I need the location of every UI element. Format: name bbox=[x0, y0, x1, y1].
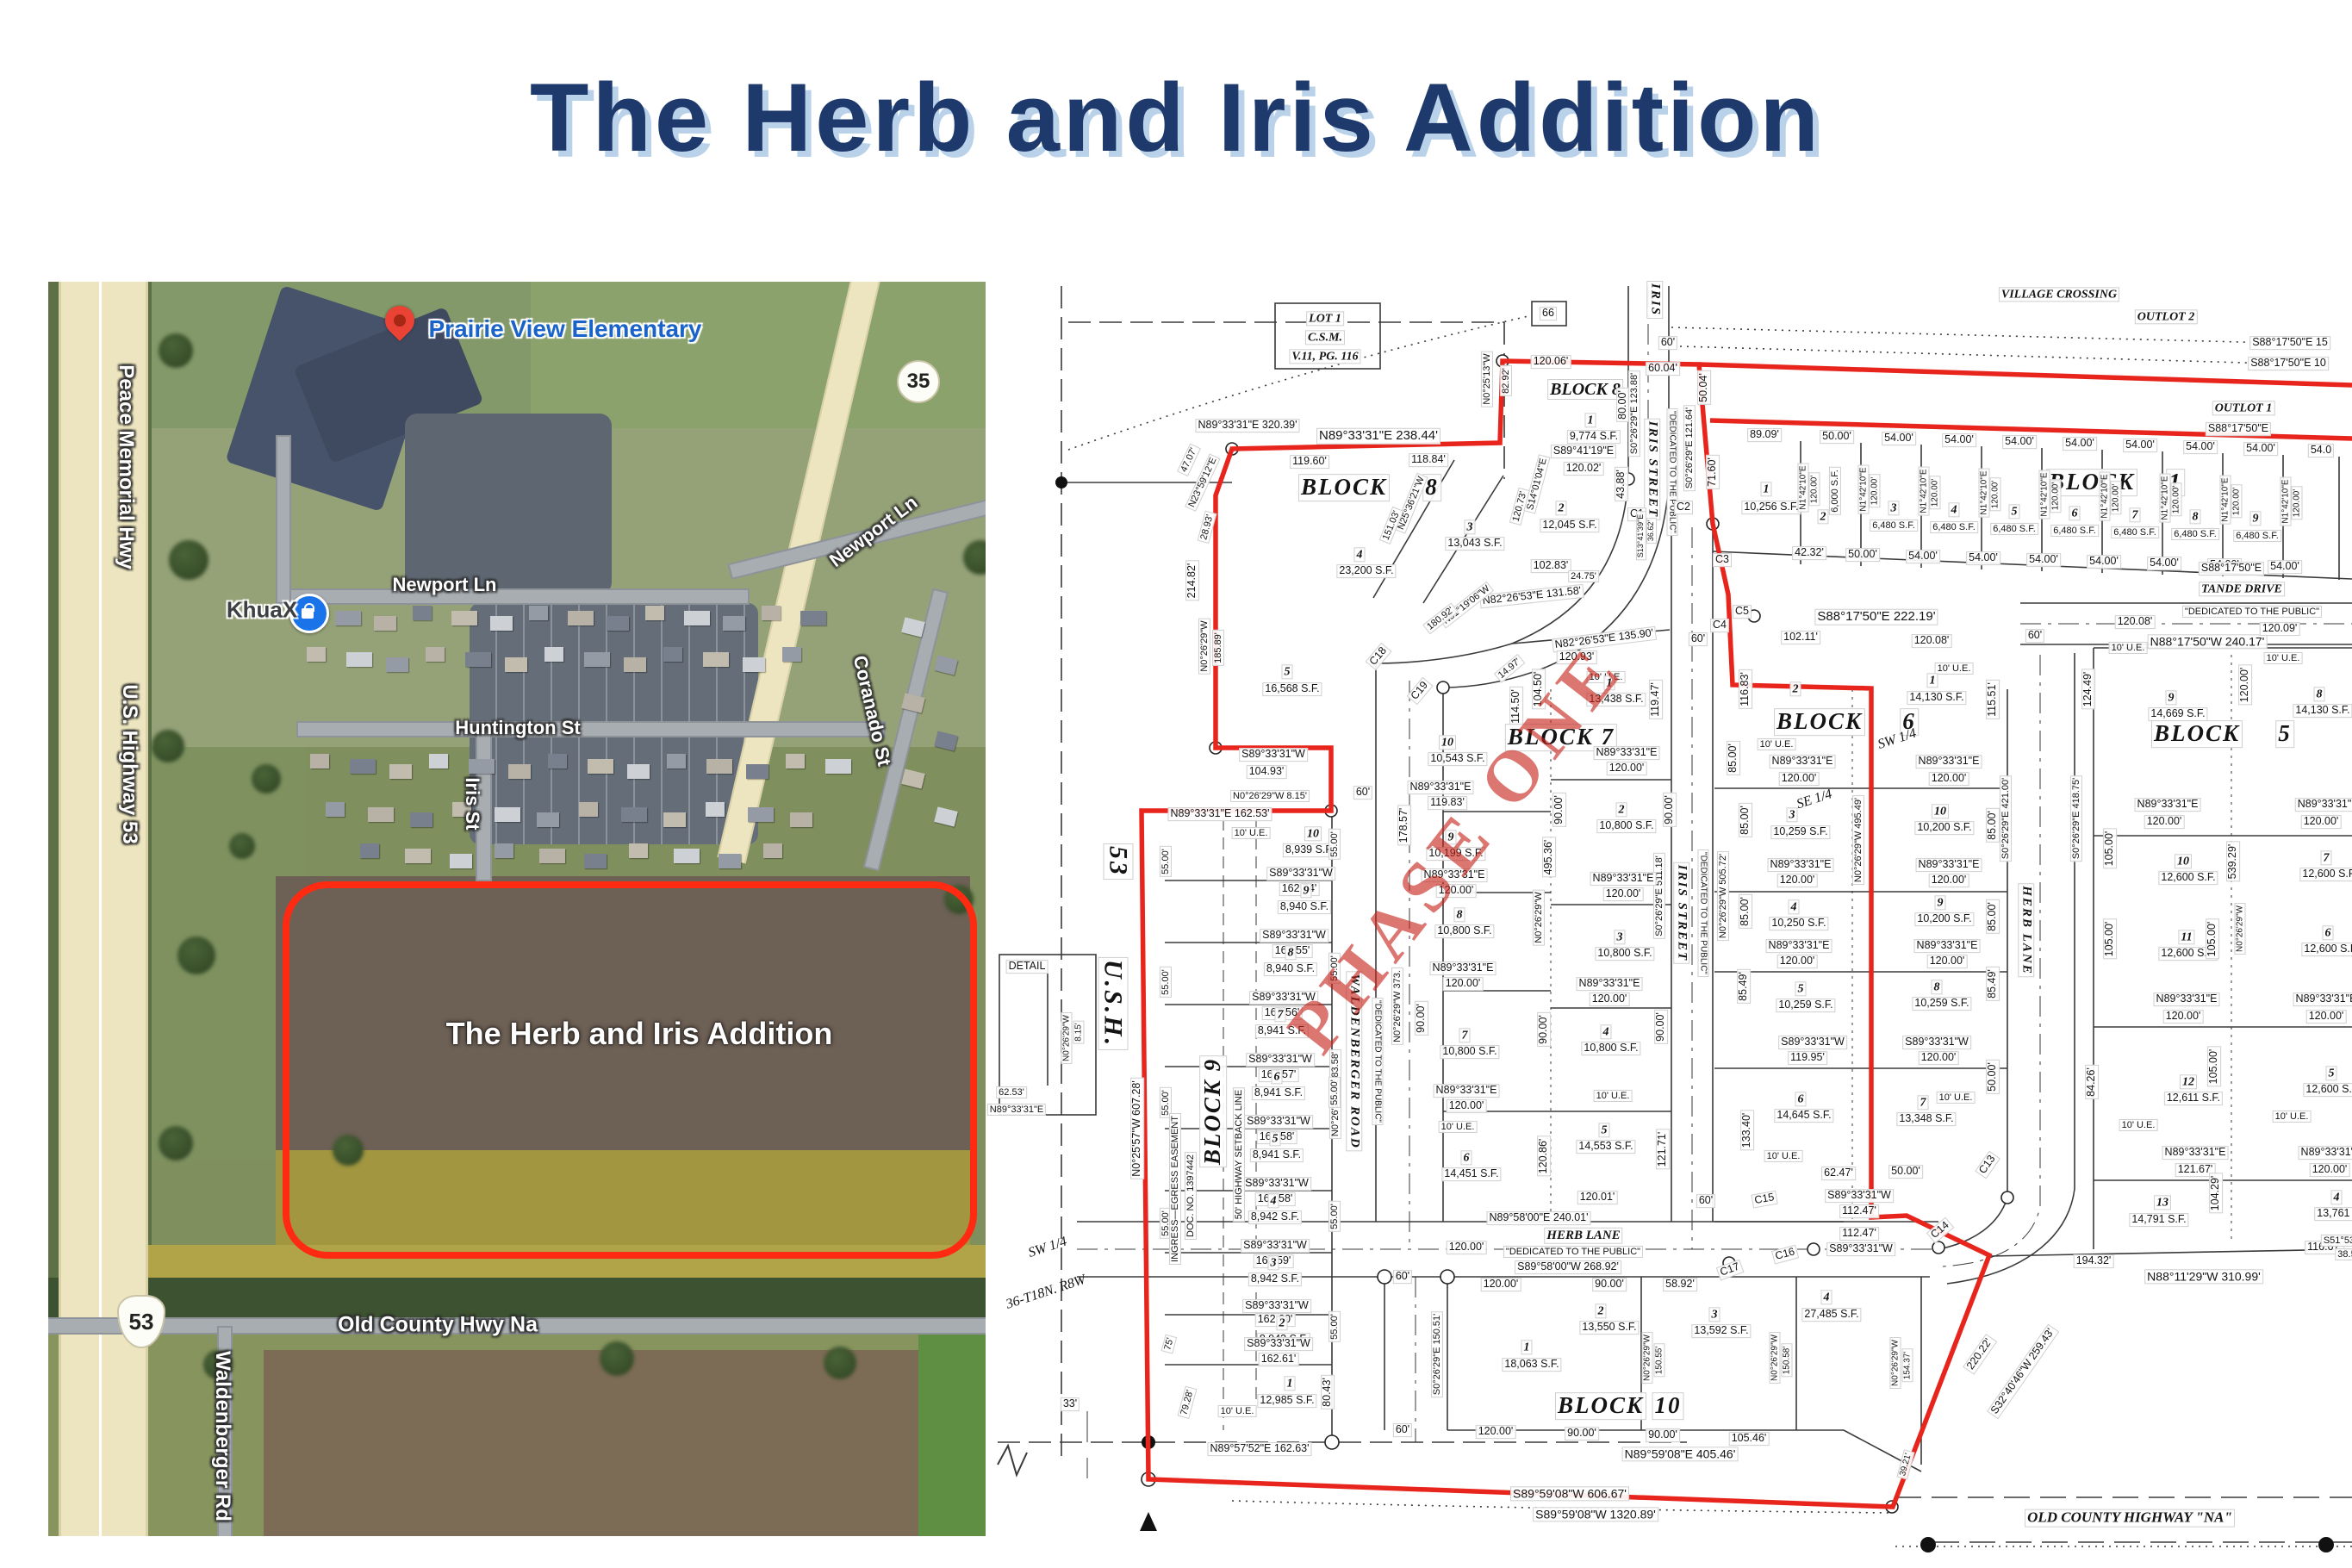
plat-label: 14,130 S.F. bbox=[1907, 691, 1966, 705]
plat-label: 120.00' bbox=[1447, 1241, 1487, 1254]
plat-label: 120.00' bbox=[1870, 475, 1881, 508]
plat-label: 185.89' bbox=[1212, 630, 1224, 666]
plat-label: 8 bbox=[1285, 945, 1297, 960]
plat-label: S88°17'50"E 10 bbox=[2248, 357, 2329, 370]
plat-label: 66 bbox=[1540, 307, 1557, 320]
plat-label: 105.00' bbox=[2207, 1047, 2221, 1087]
plat-label: 3 bbox=[1888, 501, 1900, 515]
plat-label: 120.00' bbox=[2171, 483, 2182, 517]
plat-label: N89°59'08"E 405.46' bbox=[1622, 1447, 1739, 1461]
plat-label: BLOCK bbox=[1774, 708, 1865, 736]
plat-label: N0°26'29"W bbox=[1198, 618, 1210, 674]
plat-label: 54.00' bbox=[2087, 555, 2121, 569]
plat-label: 5 bbox=[2326, 1066, 2337, 1080]
plat-label: N1°42'10"E bbox=[1979, 468, 1990, 517]
plat-label: 154.37' bbox=[1902, 1349, 1913, 1383]
plat-label: 8,940 S.F. bbox=[1278, 900, 1331, 914]
plat-label: 85.00' bbox=[1986, 808, 2000, 843]
plat-label: 85.00' bbox=[1739, 803, 1752, 837]
plat-label: 105.00' bbox=[2206, 919, 2219, 960]
plat-label: 8 bbox=[2190, 509, 2201, 524]
plat-label: 162.61' bbox=[1259, 1353, 1299, 1366]
plat-label: OLD COUNTY HIGHWAY "NA" bbox=[2025, 1509, 2235, 1528]
plat-label: 55.00' bbox=[1160, 846, 1172, 877]
plat-label: 90.00' bbox=[1654, 1010, 1668, 1044]
plat-label: C.S.M. bbox=[1305, 330, 1345, 345]
plat-label: 12 bbox=[2180, 1074, 2197, 1089]
plat-label: 119.60' bbox=[1290, 455, 1329, 469]
plat-label: 10' U.E. bbox=[2264, 652, 2303, 664]
plat-label: 11 bbox=[2178, 930, 2194, 944]
plat-label: 54.00' bbox=[2026, 553, 2061, 567]
plat-label: S89°33'31"W bbox=[1241, 1239, 1310, 1253]
plat-label: N89°33'31"E bbox=[1434, 1084, 1500, 1098]
plat-label: 6,480 S.F. bbox=[2050, 525, 2099, 537]
plat-label: 120.00' bbox=[2310, 1163, 2350, 1177]
plat-label: S89°58'00"W 268.92' bbox=[1515, 1260, 1621, 1274]
plat-label: S89°33'31"W bbox=[1244, 1337, 1313, 1351]
plat-label: 120.00' bbox=[1590, 992, 1630, 1006]
plat-label: 10,800 S.F. bbox=[1596, 819, 1656, 833]
plat-label: 104.29' bbox=[2209, 1173, 2223, 1214]
plat-label: N0°26'29"W bbox=[1642, 1332, 1653, 1384]
plat-label: 10 bbox=[1932, 804, 1949, 818]
plat-label: 120.00' bbox=[1481, 1278, 1521, 1291]
plat-label: 9 bbox=[2166, 690, 2177, 705]
plat-label: 120.00' bbox=[2301, 815, 2342, 829]
plat-label: N1°42'10"E bbox=[2039, 470, 2050, 519]
plat-label: 9 bbox=[1935, 895, 1946, 910]
plat-label: 10' U.E. bbox=[2119, 1119, 2158, 1131]
plat-label: 55.00' bbox=[1328, 1077, 1341, 1108]
plat-label: N1°42'10"E bbox=[2160, 473, 2171, 522]
plat-label: 162.54' bbox=[1279, 882, 1320, 896]
plat-label: 10' U.E. bbox=[1935, 663, 1974, 675]
plat-label: 14,451 S.F. bbox=[1441, 1167, 1501, 1181]
plat-label: 60' bbox=[1393, 1423, 1412, 1437]
plat-label: 55.00' bbox=[1160, 967, 1172, 998]
plat-label: N0°26'29"W bbox=[2235, 903, 2246, 955]
plat-label: 50.00' bbox=[1820, 430, 1854, 444]
plat-label: 120.00' bbox=[1927, 955, 1968, 968]
plat-label: S0°26'29"E 121.64' bbox=[1683, 405, 1696, 491]
plat-label: 10' U.E. bbox=[2109, 642, 2148, 654]
plat-label: 6 bbox=[1461, 1150, 1472, 1165]
plat-label: 3 bbox=[1465, 520, 1476, 534]
plat-label: 90.00' bbox=[1552, 793, 1566, 827]
plat-label: 120.00' bbox=[2231, 485, 2243, 519]
plat-label: TANDE DRIVE bbox=[2199, 582, 2285, 596]
plat-label: 54.00' bbox=[2123, 439, 2157, 452]
plat-label: 54.00' bbox=[1966, 551, 2000, 565]
plat-label: 133.40' bbox=[1740, 1111, 1754, 1151]
plat-label: 12,611 S.F. bbox=[2164, 1092, 2223, 1105]
plat-label: 120.00' bbox=[2050, 480, 2062, 513]
plat-label: 120.00' bbox=[1777, 955, 1818, 968]
plat-label: DETAIL bbox=[1006, 960, 1048, 974]
plat-label: N0°25'57"W 607.28' bbox=[1130, 1078, 1144, 1179]
plat-label: 3 bbox=[1268, 1255, 1279, 1270]
plat-label: 7 bbox=[1918, 1095, 1929, 1110]
plat-label: 8 bbox=[2314, 687, 2325, 701]
plat-label: 50.04' bbox=[1697, 370, 1711, 405]
plat-label: 10,200 S.F. bbox=[1914, 912, 1974, 926]
plat-label: HERB LANE bbox=[2019, 883, 2035, 977]
plat-label: 120.00' bbox=[1777, 874, 1818, 887]
plat-label: N1°42'10"E bbox=[1858, 464, 1870, 513]
plat-label: U.S.H. bbox=[1098, 957, 1129, 1050]
plat-label: 194.32' bbox=[2074, 1254, 2114, 1268]
plat-label: 116.83' bbox=[1739, 669, 1752, 709]
plat-label: S0°26'29"E 150.51' bbox=[1431, 1311, 1443, 1397]
plat-label: 10 bbox=[1652, 1392, 1684, 1420]
plat-label: N89°33'31"E bbox=[2293, 992, 2352, 1006]
plat-label: 54.00' bbox=[1942, 433, 1976, 447]
plat-label: 54.00' bbox=[2268, 560, 2302, 574]
plat-label: N89°33'31"E bbox=[1590, 872, 1657, 886]
plat-label: "DEDICATED TO THE PUBLIC" bbox=[2182, 606, 2322, 618]
plat-label: 24.75' bbox=[1568, 570, 1599, 582]
plat-label: 120.00' bbox=[1930, 476, 1941, 510]
plat-label: 90.00' bbox=[1537, 1012, 1551, 1047]
plat-label: 90.00' bbox=[1592, 1278, 1627, 1291]
plat-label: 60' bbox=[1696, 1194, 1715, 1208]
plat-label: S89°33'31"W bbox=[1239, 748, 1308, 762]
plat-label: 162.60' bbox=[1255, 1313, 1296, 1327]
plat-label: N0°26'29"W bbox=[1890, 1337, 1901, 1389]
plat-label: 8 bbox=[1932, 980, 1943, 994]
plat-label: N25°36'21"W bbox=[1394, 472, 1428, 534]
plat-label: BLOCK bbox=[2151, 720, 2243, 748]
plat-label: N0°25'13"W bbox=[1481, 351, 1493, 407]
plat-label: 102.83' bbox=[1531, 559, 1571, 573]
plat-label: 120.00' bbox=[1779, 772, 1820, 786]
plat-label: N89°33'31"E bbox=[2135, 798, 2201, 812]
plat-label: 120.00' bbox=[1603, 887, 1644, 901]
plat-label: N0°26'29"W 495.49' bbox=[1852, 795, 1864, 885]
plat-label: 55.00' bbox=[1328, 829, 1341, 860]
plat-label: 10,200 S.F. bbox=[1914, 821, 1974, 835]
plat-label: 10,800 S.F. bbox=[1595, 947, 1654, 961]
plat-label: SE 1/4 bbox=[1793, 786, 1835, 812]
plat-label: N0°26'29"W bbox=[1533, 889, 1545, 945]
plat-label: N89°33'31"E bbox=[1766, 939, 1832, 953]
plat-label: N89°33'31"E bbox=[1577, 977, 1643, 991]
plat-label: 7 bbox=[2130, 507, 2141, 522]
plat-label: 4 bbox=[1789, 899, 1800, 914]
plat-label: 36-T18N. R8W bbox=[1003, 1272, 1090, 1313]
plat-label: 54.00' bbox=[2183, 440, 2218, 454]
plat-label: 12,985 S.F. bbox=[1257, 1394, 1316, 1408]
plat-label: N0°26'29"W 8.15' bbox=[1230, 790, 1310, 802]
plat-label: S88°17'50"E bbox=[2199, 562, 2264, 576]
plat-label: N89°33'31" bbox=[2295, 798, 2352, 812]
plat-label: 60' bbox=[1393, 1270, 1412, 1284]
plat-label: C15 bbox=[1751, 1191, 1777, 1209]
plat-label: 105.00' bbox=[2103, 919, 2117, 960]
plat-label: 5 bbox=[1270, 1131, 1281, 1146]
plat-label: 119.47' bbox=[1649, 680, 1663, 719]
plat-label: 8,942 S.F. bbox=[1248, 1210, 1302, 1224]
plat-label: 6,480 S.F. bbox=[2111, 526, 2159, 538]
plat-label: 6,000 S.F. bbox=[1829, 467, 1841, 515]
plat-label: 85.00' bbox=[1986, 899, 2000, 934]
plat-label: 13,043 S.F. bbox=[1445, 537, 1504, 551]
plat-label: 4 bbox=[1949, 502, 1960, 517]
plat-label: 10,800 S.F. bbox=[1581, 1042, 1640, 1055]
plat-label: N1°42'10"E bbox=[2280, 476, 2292, 526]
plat-label: 50' HIGHWAY SETBACK LINE bbox=[1233, 1087, 1245, 1222]
plat-label: 5 bbox=[1795, 981, 1807, 996]
plat-label: 14,645 S.F. bbox=[1774, 1109, 1833, 1123]
plat-label: 120.00' bbox=[2292, 487, 2303, 520]
plat-label: 4 bbox=[1354, 547, 1366, 562]
plat-label: SW 1/4 bbox=[1025, 1234, 1071, 1261]
plat-label: INGRESS—EGRESS EASEMENT bbox=[1169, 1113, 1181, 1265]
plat-label: 9 bbox=[1301, 883, 1312, 898]
plat-label: "DEDICATED TO THE PUBLIC" bbox=[1503, 1246, 1643, 1258]
plat-label: 12,600 S.F. bbox=[2299, 868, 2352, 881]
plat-label: 10' U.E. bbox=[1594, 1090, 1633, 1102]
plat-label: 5 bbox=[2275, 720, 2294, 748]
plat-label: N0°26'29"W bbox=[1061, 1012, 1073, 1064]
plat-label: 120.08' bbox=[1912, 634, 1952, 648]
plat-label: 120.06' bbox=[1531, 355, 1571, 369]
plat-label: S0°26'29"E 421.00' bbox=[2000, 775, 2012, 862]
plat-label: 27,485 S.F. bbox=[1801, 1308, 1861, 1322]
plat-label: S32°40'46"W 259.43' bbox=[1987, 1324, 2059, 1419]
plat-label: LOT 1 bbox=[1306, 311, 1344, 326]
plat-label: C3 bbox=[1713, 553, 1732, 567]
plat-label: 121.71' bbox=[1656, 1129, 1670, 1170]
plat-label: 14,130 S.F. bbox=[2293, 704, 2352, 718]
plat-label: 10' U.E. bbox=[2273, 1111, 2312, 1123]
plat-label: 38.5 bbox=[2335, 1248, 2352, 1260]
plat-label: C5 bbox=[1733, 605, 1752, 619]
plat-label: 39.21' bbox=[1896, 1449, 1914, 1479]
plat-label: 4 bbox=[1601, 1024, 1612, 1039]
plat-label: 124.49' bbox=[2081, 669, 2095, 710]
plat-label: N1°42'10"E bbox=[1919, 466, 1930, 515]
plat-label: 12,600 S.F. bbox=[2301, 943, 2352, 956]
plat-label: N89°33'31"E 162.53' bbox=[1168, 807, 1272, 821]
plat-label: 33' bbox=[1061, 1397, 1080, 1411]
plat-label: 120.00' bbox=[1476, 1425, 1516, 1439]
plat-label: S14°01'04"E bbox=[1523, 454, 1550, 513]
plat-label: V.11, PG. 116 bbox=[1289, 349, 1360, 364]
plat-label: N89°33'31"E bbox=[1430, 961, 1496, 975]
plat-label: HERB LANE bbox=[1544, 1228, 1622, 1244]
plat-label: 14,553 S.F. bbox=[1576, 1140, 1635, 1154]
plat-label: S89°33'31"W bbox=[1242, 1177, 1311, 1191]
plat-label: 13,761 S. bbox=[2314, 1207, 2352, 1221]
plat-label: S89°33'31"W bbox=[1260, 929, 1328, 943]
plat-label: S88°17'50"E 15 bbox=[2249, 336, 2330, 350]
plat-label: 3 bbox=[1787, 807, 1798, 822]
plat-label: 50.00' bbox=[1888, 1165, 1923, 1179]
plat-label: 14.97' bbox=[1494, 654, 1525, 683]
plat-label: 150.55' bbox=[1654, 1344, 1665, 1378]
plat-label: 120.00' bbox=[1809, 473, 1820, 507]
plat-label: N89°33'31"E 238.44' bbox=[1316, 428, 1440, 445]
plat-label: C14 bbox=[1926, 1217, 1954, 1244]
plat-label: 4 bbox=[1268, 1193, 1279, 1208]
plat-label: 90.00' bbox=[1565, 1427, 1599, 1440]
plat-label: BLOCK bbox=[1298, 474, 1390, 501]
plat-label: 12,600 S.F. bbox=[2303, 1083, 2352, 1097]
plat-label: 120.02' bbox=[1564, 462, 1604, 476]
plat-label: N82°26'53"E 131.58' bbox=[1479, 584, 1584, 608]
plat-label: 43.88' bbox=[1615, 467, 1628, 501]
plat-labels-layer: LOT 1C.S.M.V.11, PG. 11666N89°33'31"E 32… bbox=[0, 0, 2352, 1568]
plat-label: N0°26'29"W 505.72' bbox=[1717, 851, 1729, 941]
plat-label: 2 bbox=[1556, 501, 1567, 515]
plat-label: 6,480 S.F. bbox=[2171, 528, 2219, 540]
plat-label: S0°26'29"E 511.18' bbox=[1653, 853, 1665, 939]
plat-label: 6 bbox=[1795, 1092, 1807, 1106]
plat-label: 10 bbox=[1304, 826, 1322, 841]
plat-label: N89°33'31"E bbox=[1916, 755, 1982, 768]
plat-label: 60' bbox=[1689, 632, 1708, 646]
plat-label: 54.00' bbox=[2002, 435, 2037, 449]
plat-label: 13,348 S.F. bbox=[1896, 1112, 1956, 1126]
plat-label: 85.49' bbox=[1737, 969, 1751, 1004]
plat-label: 23,200 S.F. bbox=[1336, 564, 1396, 578]
plat-label: 10,800 S.F. bbox=[1440, 1045, 1499, 1059]
plat-label: 115.51' bbox=[1986, 680, 2000, 719]
plat-label: 2 bbox=[1818, 509, 1829, 524]
plat-label: 7 bbox=[2321, 850, 2332, 865]
plat-label: C17 bbox=[1716, 1260, 1745, 1281]
plat-label: OUTLOT 1 bbox=[2212, 401, 2275, 415]
plat-label: 10 bbox=[2175, 854, 2192, 868]
plat-label: S88°17'50"E 222.19' bbox=[1814, 609, 1938, 625]
plat-label: 120.00' bbox=[2144, 815, 2185, 829]
plat-label: 105.46' bbox=[1729, 1432, 1770, 1446]
plat-label: 10,259 S.F. bbox=[1776, 999, 1835, 1012]
plat-label: 120.00' bbox=[1990, 478, 2001, 512]
plat-label: 10' U.E. bbox=[1232, 827, 1271, 839]
plat-label: 55.00' bbox=[1328, 1201, 1341, 1232]
plat-label: 18,063 S.F. bbox=[1502, 1358, 1561, 1372]
plat-label: 50.00' bbox=[1845, 548, 1880, 562]
plat-label: 14,791 S.F. bbox=[2129, 1213, 2188, 1227]
plat-label: 8,941 S.F. bbox=[1250, 1148, 1304, 1162]
plat-label: 104.93' bbox=[1247, 765, 1287, 779]
plat-label: 6,480 S.F. bbox=[1870, 520, 1918, 532]
plat-label: 7 bbox=[1459, 1028, 1471, 1042]
plat-label: N89°33'31"E bbox=[1916, 858, 1982, 872]
plat-label: 9,774 S.F. bbox=[1567, 430, 1621, 444]
plat-label: 85.49' bbox=[1986, 967, 2000, 1001]
plat-label: S13°41'39"E bbox=[1636, 512, 1646, 561]
plat-label: 120.00' bbox=[2163, 1010, 2204, 1024]
plat-label: S51°53' bbox=[2321, 1235, 2352, 1247]
plat-label: N89°33'31"E bbox=[2154, 992, 2220, 1006]
plat-label: N89°33'31"E bbox=[2299, 1146, 2352, 1160]
plat-label: S89°33'31"W bbox=[1826, 1242, 1895, 1256]
plat-label: N89°33'31"E bbox=[2162, 1146, 2229, 1160]
plat-label: 10' U.E. bbox=[1937, 1092, 1976, 1104]
plat-label: 54.00' bbox=[1906, 550, 1940, 563]
plat-label: 90.00' bbox=[1646, 1428, 1680, 1442]
plat-label: C19 bbox=[1407, 677, 1434, 705]
plat-label: 13 bbox=[2154, 1195, 2171, 1210]
plat-label: N1°42'10"E bbox=[1798, 463, 1809, 512]
plat-label: 75' bbox=[1161, 1334, 1178, 1353]
plat-label: 112.47' bbox=[1839, 1227, 1879, 1241]
plat-label: 5 bbox=[1282, 664, 1293, 679]
plat-label: 1 bbox=[1761, 482, 1772, 496]
plat-label: 8.15' bbox=[1073, 1020, 1085, 1043]
plat-label: 120.00' bbox=[1447, 1099, 1487, 1113]
plat-label: OUTLOT 2 bbox=[2135, 309, 2198, 324]
plat-label: 12,600 S.F. bbox=[2158, 871, 2218, 885]
plat-label: 120.00' bbox=[1929, 874, 1969, 887]
plat-label: 42.32' bbox=[1792, 546, 1826, 560]
plat-label: 5 bbox=[2009, 504, 2020, 519]
plat-label: 10,250 S.F. bbox=[1769, 917, 1828, 930]
plat-label: 82.92' bbox=[1500, 365, 1512, 396]
plat-label: 62.47' bbox=[1821, 1167, 1856, 1180]
plat-label: BLOCK bbox=[1555, 1392, 1646, 1420]
plat-label: 120.09' bbox=[2260, 622, 2300, 636]
plat-label: 13,550 S.F. bbox=[1579, 1321, 1639, 1335]
plat-label: 220.22' bbox=[1963, 1334, 1997, 1374]
plat-label: 54.00' bbox=[2063, 437, 2097, 451]
plat-label: 119.95' bbox=[1788, 1051, 1827, 1065]
plat-label: 10' U.E. bbox=[1758, 738, 1796, 750]
plat-label: 58.92' bbox=[1663, 1278, 1697, 1291]
plat-label: 8,941 S.F. bbox=[1252, 1086, 1305, 1100]
plat-label: 105.00' bbox=[2103, 829, 2117, 869]
plat-label: S89°33'31"W bbox=[1246, 1053, 1315, 1067]
plat-label: 120.00' bbox=[2111, 482, 2122, 515]
plat-label: VILLAGE CROSSING bbox=[1999, 287, 2119, 302]
plat-label: S89°33'31"W bbox=[1825, 1189, 1894, 1203]
plat-label: 55.00' bbox=[1328, 1311, 1341, 1342]
plat-label: BLOCK 9 bbox=[1199, 1055, 1227, 1167]
plat-label: C2 bbox=[1674, 501, 1693, 514]
plat-label: 2 bbox=[1790, 681, 1801, 696]
plat-label: 54.00' bbox=[2147, 557, 2181, 570]
plat-label: 12,045 S.F. bbox=[1540, 519, 1599, 532]
plat-label: 1 bbox=[1585, 413, 1596, 427]
plat-label: S89°59'08"W 1320.89' bbox=[1533, 1507, 1658, 1521]
plat-label: 1 bbox=[1521, 1340, 1533, 1354]
plat-label: 120.00' bbox=[1443, 977, 1484, 991]
plat-label: S89°33'31"W bbox=[1242, 1299, 1311, 1313]
plat-label: 60' bbox=[1658, 336, 1677, 350]
plat-label: 10' U.E. bbox=[1218, 1405, 1257, 1417]
plat-label: 6 bbox=[2323, 925, 2334, 940]
plat-label: N0°26'29"W bbox=[1770, 1332, 1781, 1384]
plat-label: 1 bbox=[1927, 673, 1938, 688]
plat-label: IRIS STREET bbox=[1645, 419, 1661, 520]
plat-label: DOC. NO. 1397442 bbox=[1185, 1152, 1197, 1240]
plat-label: N89°33'31"E bbox=[1914, 939, 1981, 953]
plat-label: 6,480 S.F. bbox=[1990, 523, 2038, 535]
plat-label: 120.01' bbox=[1577, 1191, 1618, 1204]
plat-label: "DEDICATED TO THE PUBLIC" bbox=[1667, 408, 1678, 536]
plat-label: 150.58' bbox=[1782, 1344, 1793, 1378]
plat-label: 36.62' bbox=[1646, 518, 1657, 544]
plat-label: 62.53' bbox=[996, 1086, 1027, 1098]
plat-label: 71.60' bbox=[1706, 455, 1720, 489]
plat-label: N1°42'10"E bbox=[2100, 471, 2111, 520]
plat-label: 120.00' bbox=[1607, 762, 1647, 775]
plat-label: N89°33'31"E bbox=[1768, 858, 1834, 872]
